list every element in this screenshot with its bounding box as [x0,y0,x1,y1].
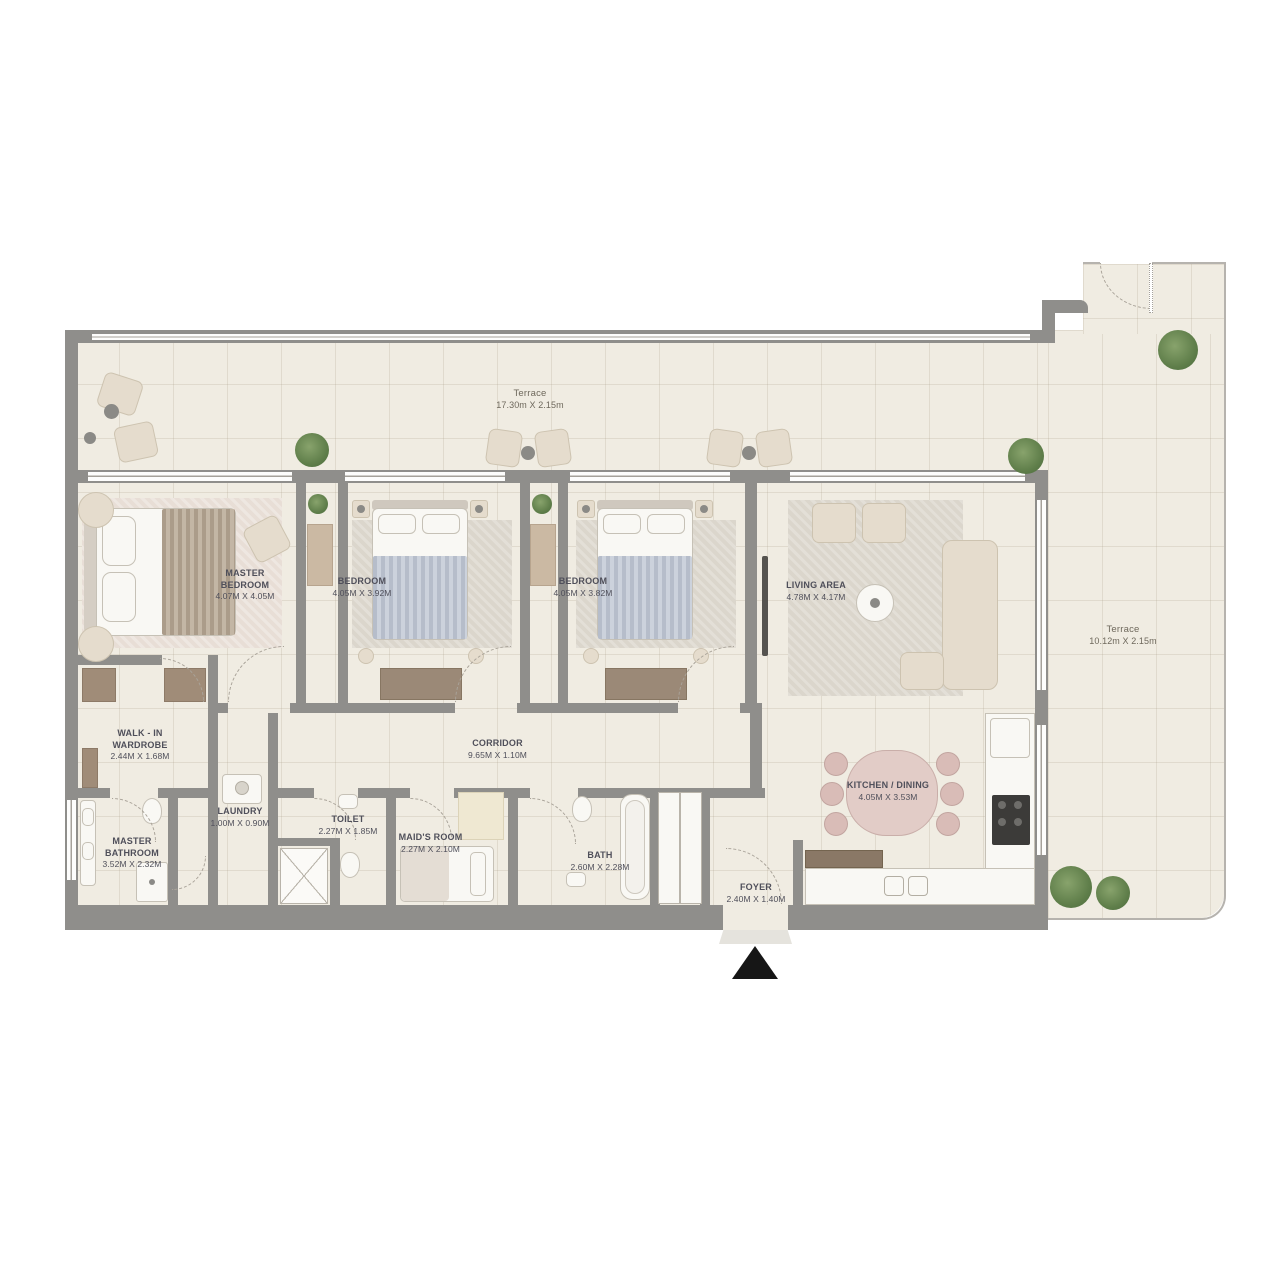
terrace-rail-top-b [1152,262,1226,264]
dining-chair [824,812,848,836]
room-name: KITCHEN / DINING [838,780,938,792]
burner-icon [1014,801,1022,809]
room-label-laundry: LAUNDRY 1.00m X 0.90m [205,806,275,829]
sink-icon [82,808,94,826]
window-kitchen-right [1037,725,1046,855]
dining-chair [940,782,964,806]
linen-closet [280,848,328,904]
bathtub-inner [625,800,645,894]
window-bedroom-1 [345,472,505,481]
dining-chair [824,752,848,776]
foyer-console [805,850,883,868]
room-dims: 4.05m X 3.82m [538,588,628,599]
wall-xcloset-right [330,838,340,930]
sink-icon [566,872,586,887]
wall-corridor-bottom-d [358,788,410,798]
sink-icon [338,794,358,809]
pouf [78,626,114,662]
room-dims: 2.27m X 2.10m [388,844,473,855]
burner-icon [998,818,1006,826]
wall-maid-right [508,788,518,930]
room-dims: 4.05m X 3.92m [317,588,407,599]
plant-icon [308,494,328,514]
terrace-chair [706,428,745,468]
room-dims: 2.60m X 2.28m [560,862,640,873]
room-name: LAUNDRY [205,806,275,818]
decor-icon [870,598,880,608]
room-dims: 4.07m X 4.05m [210,591,280,602]
bed-headboard [84,512,96,632]
room-name: BEDROOM [538,576,628,588]
room-label-maids-room: MAID'S ROOM 2.27m X 2.10m [388,832,473,855]
toilet-icon [572,796,592,822]
room-label-corridor: CORRIDOR 9.65m X 1.10m [450,738,545,761]
kitchen-sink [884,876,904,896]
terrace-side-table [84,432,96,444]
pouf [78,492,114,528]
room-label-master-bedroom: MASTER BEDROOM 4.07m X 4.05m [210,568,280,602]
terrace-side-table [104,404,119,419]
room-label-terrace-right: Terrace 10.12m X 2.15m [1058,624,1188,648]
room-name: MAID'S ROOM [388,832,473,844]
terrace-chair [485,428,524,468]
entrance-step [719,930,792,944]
room-dims: 1.00m X 0.90m [205,818,275,829]
entrance-arrow-icon [732,946,778,979]
sofa [942,540,998,690]
wall-master-vanity [296,483,306,703]
burner-icon [998,801,1006,809]
terrace-round-table [521,446,535,460]
wall-wardrobe-right [208,655,218,798]
washer-door-icon [235,781,249,795]
window-bedroom-2 [570,472,730,481]
terrace-chair [755,428,794,468]
window-top-parapet [92,334,1030,340]
terrace-round-table [742,446,756,460]
room-dims: 9.65m X 1.10m [450,750,545,761]
terrace-rail-right-bottom [1048,262,1226,920]
room-name: LIVING AREA [771,580,861,592]
room-label-kitchen-dining: KITCHEN / DINING 4.05m X 3.53m [838,780,938,803]
bedroom2-wardrobe [605,668,687,700]
plant-icon [1008,438,1044,474]
lamp-icon [582,505,590,513]
room-label-bedroom-2: BEDROOM 4.05m X 3.82m [538,576,628,599]
bed-pillow [603,514,641,534]
wall-corridor-bottom-a [65,788,110,798]
bed-pillow [378,514,416,534]
sofa-chaise [900,652,944,690]
room-name: TOILET [308,814,388,826]
fridge [990,718,1030,758]
plant-icon [532,494,552,514]
lamp-icon [475,505,483,513]
entrance-opening [723,905,788,930]
lamp-icon [700,505,708,513]
room-label-living-area: LIVING AREA 4.78m X 4.17m [771,580,861,603]
lamp-icon [357,505,365,513]
room-dims: 4.78m X 4.17m [771,592,861,603]
wall-corridor-top-c [517,703,678,713]
plant-icon [1050,866,1092,908]
bed-pillow [422,514,460,534]
plant-icon [1096,876,1130,910]
plant-icon [295,433,329,467]
room-dims: 2.27m X 1.85m [308,826,388,837]
room-label-bath: BATH 2.60m X 2.28m [560,850,640,873]
room-name: MASTER BEDROOM [210,568,280,591]
window-living-area [790,472,1025,481]
burner-icon [1014,818,1022,826]
wardrobe-unit [82,748,98,788]
bed-pillow [102,572,136,622]
room-name: Terrace [1058,624,1188,636]
room-dims: 3.52m X 2.32m [99,859,165,870]
room-name: BEDROOM [317,576,407,588]
dining-chair [936,752,960,776]
living-armchair [862,503,906,543]
room-label-foyer: FOYER 2.40m X 1.40m [720,882,792,905]
drain-icon [149,879,155,885]
pouf [583,648,599,664]
room-label-bedroom-1: BEDROOM 4.05m X 3.92m [317,576,407,599]
bed-pillow [647,514,685,534]
sink-icon [82,842,94,860]
room-dims: 2.40m X 1.40m [720,894,792,905]
room-label-walk-in-wardrobe: WALK - IN WARDROBE 2.44m X 1.68m [105,728,175,762]
room-name: MASTER BATHROOM [99,836,165,859]
toilet-icon [340,852,360,878]
window-bathroom-left [67,800,76,880]
dining-chair [936,812,960,836]
terrace-door-leaf [1149,263,1153,313]
kitchen-sink [908,876,928,896]
tv-icon [762,556,768,656]
wall-top-step-v [1042,300,1055,343]
room-name: Terrace [455,388,605,400]
room-dims: 2.44m X 1.68m [105,751,175,762]
room-label-toilet: TOILET 2.27m X 1.85m [308,814,388,837]
wall-corridor-end [750,703,762,791]
floor-plan: Terrace 17.30m X 2.15m MASTER BEDROOM 4.… [0,0,1280,1280]
utility-closet-doors [658,792,702,904]
wall-bedroom1-vanity [520,483,530,703]
bed-pillow [470,852,486,896]
room-dims: 17.30m X 2.15m [455,400,605,412]
room-name: WALK - IN WARDROBE [105,728,175,751]
wall-foyer-right [793,840,803,910]
pouf [358,648,374,664]
wall-bedroom2-living [745,483,757,703]
room-name: BATH [560,850,640,862]
wall-corridor-top-b [290,703,455,713]
room-dims: 10.12m X 2.15m [1058,636,1188,648]
wall-toilet-right [386,788,396,930]
plant-icon [1158,330,1198,370]
terrace-chair [534,428,573,468]
room-name: FOYER [720,882,792,894]
maid-bed-blanket [401,847,449,901]
window-living-right [1037,500,1046,690]
living-armchair [812,503,856,543]
room-dims: 4.05m X 3.53m [838,792,938,803]
room-label-terrace-top: Terrace 17.30m X 2.15m [455,388,605,412]
wardrobe-unit [82,668,116,702]
terrace-rail-top-a [1083,262,1100,264]
bedroom1-wardrobe [380,668,462,700]
room-label-master-bathroom: MASTER BATHROOM 3.52m X 2.32m [99,836,165,870]
room-name: CORRIDOR [450,738,545,750]
window-master-bedroom [88,472,292,481]
